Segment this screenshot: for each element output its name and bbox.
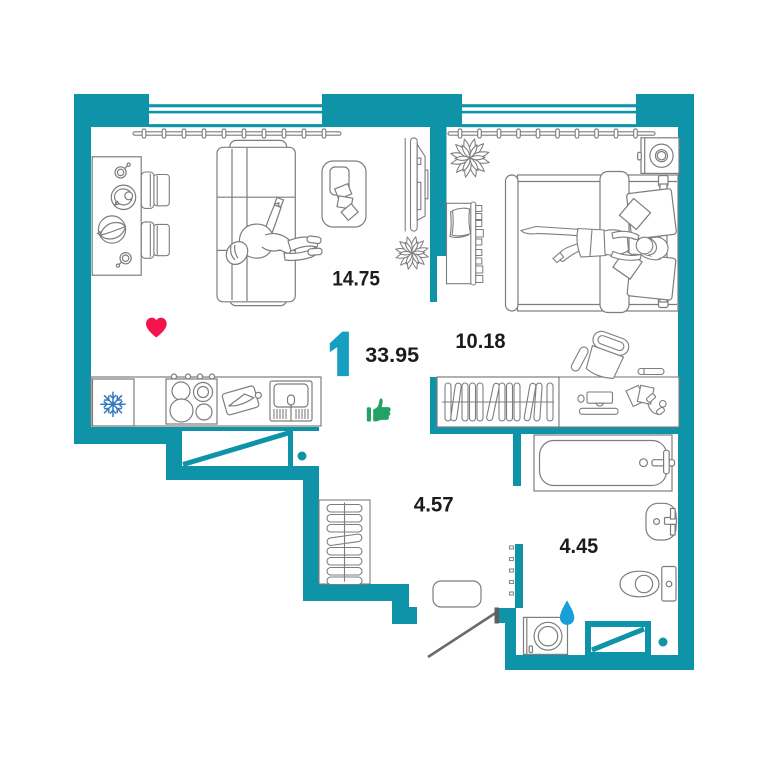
svg-text:4.45: 4.45: [560, 534, 599, 558]
svg-text:33.95: 33.95: [365, 343, 419, 367]
svg-text:4.57: 4.57: [414, 493, 454, 517]
svg-text:14.75: 14.75: [332, 266, 380, 290]
svg-text:10.18: 10.18: [455, 329, 505, 353]
